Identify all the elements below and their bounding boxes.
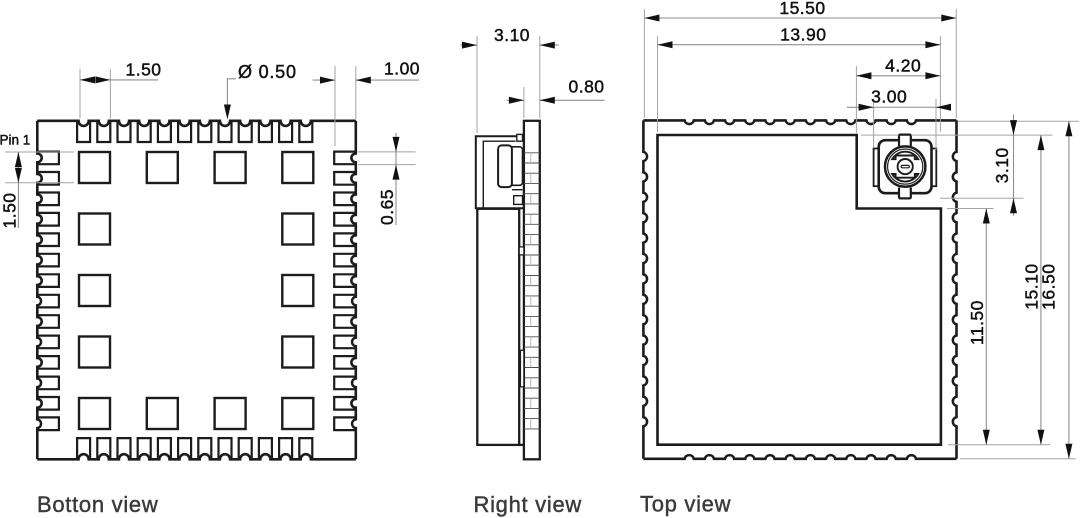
svg-text:0.65: 0.65 bbox=[377, 189, 397, 225]
svg-text:Botton view: Botton view bbox=[37, 492, 158, 517]
svg-text:1.00: 1.00 bbox=[384, 59, 420, 79]
svg-text:15.50: 15.50 bbox=[779, 0, 825, 18]
svg-text:16.50: 16.50 bbox=[1039, 264, 1059, 310]
svg-text:Ø 0.50: Ø 0.50 bbox=[238, 62, 297, 82]
svg-text:1.50: 1.50 bbox=[125, 60, 161, 80]
svg-text:0.80: 0.80 bbox=[568, 77, 604, 97]
svg-text:13.90: 13.90 bbox=[780, 25, 826, 45]
svg-text:Top view: Top view bbox=[640, 492, 731, 517]
svg-text:1.50: 1.50 bbox=[0, 192, 20, 228]
svg-text:3.10: 3.10 bbox=[992, 147, 1012, 183]
svg-text:Pin 1: Pin 1 bbox=[0, 133, 30, 148]
svg-text:3.00: 3.00 bbox=[871, 87, 907, 107]
svg-text:11.50: 11.50 bbox=[967, 300, 987, 345]
svg-text:3.10: 3.10 bbox=[494, 25, 530, 45]
svg-text:Right view: Right view bbox=[474, 492, 582, 517]
svg-text:4.20: 4.20 bbox=[885, 56, 921, 76]
